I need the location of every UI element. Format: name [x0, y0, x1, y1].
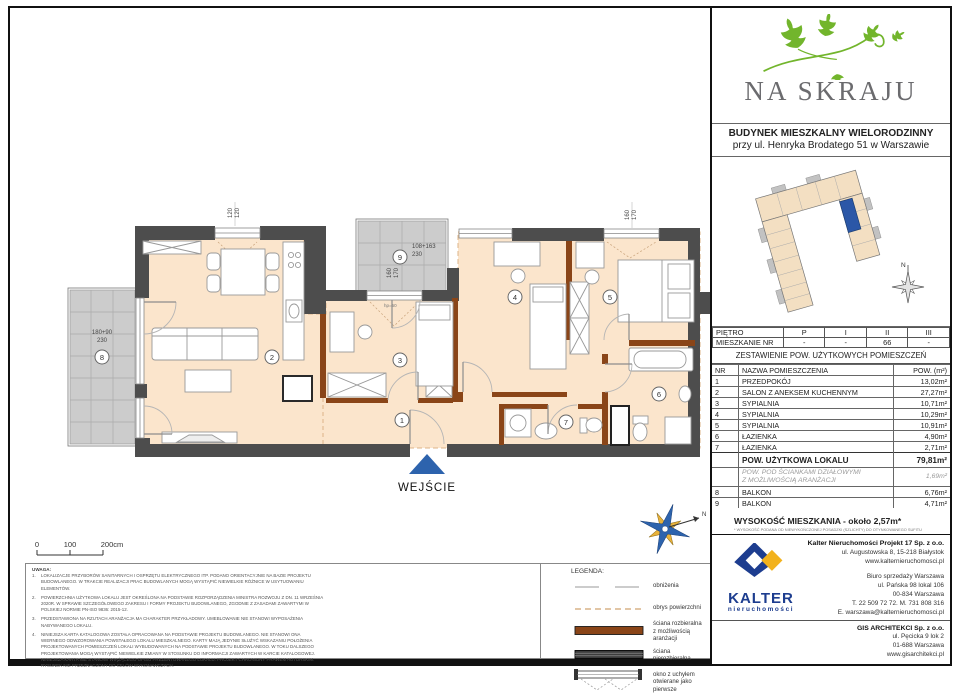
note-text: NINIEJSZA KARTA KATALOGOWA ZOSTAŁA OPRAC… — [41, 632, 324, 670]
scale-0: 0 — [35, 540, 39, 549]
note-number: 2. — [32, 595, 41, 614]
site-plan-section: N — [712, 157, 950, 327]
apartment-row: MIESZKANIE NR - - 66 - — [713, 338, 950, 348]
entrance-arrow-icon — [409, 454, 445, 474]
svg-text:8: 8 — [100, 353, 104, 362]
office-address-1: ul. Pańska 98 lokal 106 — [802, 582, 944, 591]
legend-label: obniżenia — [653, 583, 679, 591]
toilet-bath7 — [580, 418, 602, 433]
height-footnote: * WYSOKOŚĆ PODANA OD NIEWYKOŃCZONEJ POSA… — [734, 527, 946, 532]
note-text: LOKALIZACJE PRZYBORÓW SANITARNYCH I OSPR… — [41, 573, 324, 592]
note-item: 2. POWIERZCHNIA UŻYTKOWA LOKALU JEST OKR… — [32, 595, 324, 614]
toilet-bath6 — [633, 416, 648, 441]
architect-address: GIS ARCHITEKCI Sp. z o.o. ul. Pęcicka 9 … — [720, 624, 944, 660]
dim-b9-va: 160 — [387, 267, 393, 278]
architect-address-2: 01-688 Warszawa — [720, 642, 944, 651]
floor-1: I — [825, 328, 867, 338]
table-row: 7ŁAZIENKA2,71m² — [712, 442, 950, 453]
dim-top-left-a: 120 — [228, 207, 234, 218]
architect-address-1: ul. Pęcicka 9 lok 2 — [720, 633, 944, 642]
svg-text:6: 6 — [657, 390, 661, 399]
sink-bath6 — [679, 386, 691, 402]
bed-room3 — [416, 302, 453, 386]
apt-3: - — [908, 338, 950, 348]
tilt-window-symbol — [571, 669, 653, 698]
note-item: 4. NINIEJSZA KARTA KATALOGOWA ZOSTAŁA OP… — [32, 632, 324, 670]
legend-row: obniżenia — [571, 578, 705, 596]
dim-b9-vb: 170 — [394, 267, 400, 278]
bathtub — [629, 348, 693, 371]
dim-b9-depth: 230 — [412, 252, 423, 258]
catalog-card-page: 1 2 3 4 5 6 7 8 9 120 120 108+163 230 16… — [8, 6, 952, 666]
company-website: www.kalternieruchomosci.pl — [802, 558, 944, 567]
sofa — [152, 328, 258, 360]
note-text: PRZEDSTAWIONA NA RZUTACH ARANŻACJA MA CH… — [41, 616, 324, 629]
bed-room4 — [530, 284, 566, 369]
note-number: 4. — [32, 632, 41, 670]
building-address: przy ul. Henryka Brodatego 51 w Warszawi… — [712, 140, 950, 151]
legend-label: ściana rozbieralnaz możliwością aranżacj… — [653, 621, 705, 644]
table-row: 3SYPIALNIA10,71m² — [712, 398, 950, 409]
kalter-logo-icon — [733, 543, 789, 583]
company-name: Kalter Nieruchomości Projekt 17 Sp. z o.… — [802, 539, 944, 549]
partition-value: 1,69m² — [894, 468, 951, 487]
room-circle-1: 1 — [395, 413, 409, 427]
apartment-height: WYSOKOŚĆ MIESZKANIA - około 2,57m* — [734, 516, 946, 526]
office-address-2: 00-834 Warszawa — [802, 591, 944, 600]
info-panel: NA SKRAJU BUDYNEK MIESZKALNY WIELORODZIN… — [710, 6, 952, 666]
note-number: 1. — [32, 573, 41, 592]
site-compass-icon: N — [892, 262, 924, 303]
kalter-brand-text: KALTER — [720, 590, 802, 607]
room-circle-5: 5 — [603, 290, 617, 304]
structural-wall-symbol — [571, 647, 653, 665]
floor-label: PIĘTRO — [713, 328, 784, 338]
site-north-label: N — [901, 262, 906, 269]
table-row: 4SYPIALNIA10,29m² — [712, 409, 950, 420]
svg-text:7: 7 — [564, 418, 568, 427]
dim-top-right-a: 160 — [625, 209, 631, 220]
area-outline-symbol — [571, 600, 653, 618]
room-circle-2: 2 — [265, 350, 279, 364]
legend-label: obrys powierzchni — [653, 605, 701, 613]
architect-website: www.gisarchitekci.pl — [720, 651, 944, 660]
notes-box: UWAGA: 1. LOKALIZACJE PRZYBORÓW SANITARN… — [25, 563, 541, 659]
table-row: 6ŁAZIENKA4,90m² — [712, 431, 950, 442]
table-row: 2SALON Z ANEKSEM KUCHENNYM27,27m² — [712, 387, 950, 398]
dim-b8-width: 180+90 — [92, 330, 113, 336]
svg-text:4: 4 — [513, 293, 517, 302]
removable-wall-symbol — [571, 623, 653, 641]
note-text: POWIERZCHNIA UŻYTKOWA LOKALU JEST OKREŚL… — [41, 595, 324, 614]
floor-row: PIĘTRO P I II III — [713, 328, 950, 338]
scale-bar: 0 100 200cm — [35, 540, 123, 555]
shower-tray — [665, 417, 691, 444]
developer-address: Kalter Nieruchomości Projekt 17 Sp. z o.… — [802, 539, 944, 617]
table-row: 1PRZEDPOKÓJ13,02m² — [712, 376, 950, 387]
entrance-marker: WEJŚCIE — [398, 454, 456, 494]
room-circle-6: 6 — [652, 387, 666, 401]
bed-room5 — [618, 260, 694, 322]
note-item: 1. LOKALIZACJE PRZYBORÓW SANITARNYCH I O… — [32, 573, 324, 592]
kalter-logo: KALTER nieruchomości — [720, 539, 802, 617]
rooms-table: NR NAZWA POMIESZCZENIA POW. (m²) 1PRZEDP… — [712, 364, 950, 508]
compass-north-label: N — [702, 512, 706, 518]
legend-row: obrys powierzchni — [571, 600, 705, 618]
office-phone: T. 22 509 72 72. M. 731 808 316 — [802, 600, 944, 609]
floor-3: III — [908, 328, 950, 338]
room-circle-7: 7 — [559, 415, 573, 429]
svg-text:5: 5 — [608, 293, 612, 302]
legend-title: LEGENDA: — [571, 568, 705, 575]
room-circle-3: 3 — [393, 353, 407, 367]
floor-plan-drawing: 1 2 3 4 5 6 7 8 9 120 120 108+163 230 16… — [10, 8, 710, 658]
legend-row: ściana nierozbieralna — [571, 647, 705, 665]
apartment-label: MIESZKANIE NR — [713, 338, 784, 348]
site-plan-map: N — [712, 157, 950, 325]
building-info-section: BUDYNEK MIESZKALNY WIELORODZINNY przy ul… — [712, 124, 950, 157]
apt-2: 66 — [866, 338, 908, 348]
washer — [505, 409, 531, 437]
room-circle-9: 9 — [393, 250, 407, 264]
office-email: E. warszawa@kalternieruchomosci.pl — [802, 609, 944, 618]
legend-row: ściana rozbieralnaz możliwością aranżacj… — [571, 621, 705, 644]
tv-sideboard — [162, 432, 237, 443]
developer-contact-section: KALTER nieruchomości Kalter Nieruchomośc… — [712, 534, 950, 619]
dim-top-right-b: 170 — [632, 209, 638, 220]
dim-hp-label: hp=60 — [384, 303, 397, 308]
apt-1: - — [825, 338, 867, 348]
svg-text:2: 2 — [270, 353, 274, 362]
dim-b8-depth: 230 — [97, 338, 108, 344]
table-row: 5SYPIALNIA10,91m² — [712, 420, 950, 431]
room-circle-8: 8 — [95, 350, 109, 364]
building-type: BUDYNEK MIESZKALNY WIELORODZINNY — [712, 128, 950, 139]
floor-table: PIĘTRO P I II III MIESZKANIE NR - - 66 - — [712, 327, 950, 348]
table-row: 9BALKON4,71m² — [712, 498, 950, 509]
partition-area-row: POW. POD ŚCIANKAMI DZIAŁOWYMI Z MOŻLIWOŚ… — [712, 468, 950, 487]
total-area-row: POW. UŻYTKOWA LOKALU 79,81m² — [712, 453, 950, 468]
office-name: Biuro sprzedaży Warszawa — [802, 573, 944, 582]
table-row: 8BALKON6,76m² — [712, 487, 950, 498]
ivy-leaves-icon — [731, 14, 931, 80]
project-name: NA SKRAJU — [744, 76, 917, 107]
scale-100: 100 — [64, 540, 77, 549]
logo-section: NA SKRAJU — [712, 8, 950, 124]
apt-p: - — [783, 338, 825, 348]
total-area-value: 79,81m² — [894, 453, 951, 468]
floor-p: P — [783, 328, 825, 338]
lowered-ceiling-symbol — [571, 578, 653, 596]
partition-label: POW. POD ŚCIANKAMI DZIAŁOWYMI Z MOŻLIWOŚ… — [739, 468, 894, 487]
balcony-8 — [68, 288, 137, 446]
svg-text:1: 1 — [400, 416, 404, 425]
svg-text:3: 3 — [398, 356, 402, 365]
legend-label: okno z uchyłemotwierane jako pierwsze — [653, 672, 705, 695]
kalter-brand-sub: nieruchomości — [720, 606, 802, 613]
room-circle-4: 4 — [508, 290, 522, 304]
entrance-label: WEJŚCIE — [398, 481, 456, 494]
scale-200: 200cm — [101, 540, 124, 549]
svg-text:9: 9 — [398, 253, 402, 262]
legend-box: LEGENDA: obniżenia obrys powierzchni ści… — [540, 563, 712, 659]
note-item: 3. PRZEDSTAWIONA NA RZUTACH ARANŻACJA MA… — [32, 616, 324, 629]
company-address: ul. Augustowska 8, 15-218 Białystok — [802, 549, 944, 558]
notes-title: UWAGA: — [32, 567, 534, 572]
architect-contact-section: GIS ARCHITEKCI Sp. z o.o. ul. Pęcicka 9 … — [712, 620, 950, 664]
note-number: 3. — [32, 616, 41, 629]
area-table-title: ZESTAWIENIE POW. UŻYTKOWYCH POMIESZCZEŃ — [712, 348, 950, 364]
storage-closet — [611, 406, 629, 445]
dim-b9-width: 108+163 — [412, 244, 436, 250]
architect-name: GIS ARCHITEKCI Sp. z o.o. — [720, 624, 944, 634]
legend-row: okno z uchyłemotwierane jako pierwsze — [571, 669, 705, 698]
sink-bath7 — [535, 423, 557, 439]
total-area-label: POW. UŻYTKOWA LOKALU — [739, 453, 894, 468]
coffee-table — [185, 370, 231, 392]
height-section: WYSOKOŚĆ MIESZKANIA - około 2,57m* * WYS… — [712, 508, 950, 534]
dim-top-left-b: 120 — [235, 207, 241, 218]
rooms-table-header: NR NAZWA POMIESZCZENIA POW. (m²) — [712, 365, 950, 376]
floor-2: II — [866, 328, 908, 338]
compass-rose-icon: N — [632, 496, 706, 562]
legend-label: ściana nierozbieralna — [653, 649, 705, 664]
